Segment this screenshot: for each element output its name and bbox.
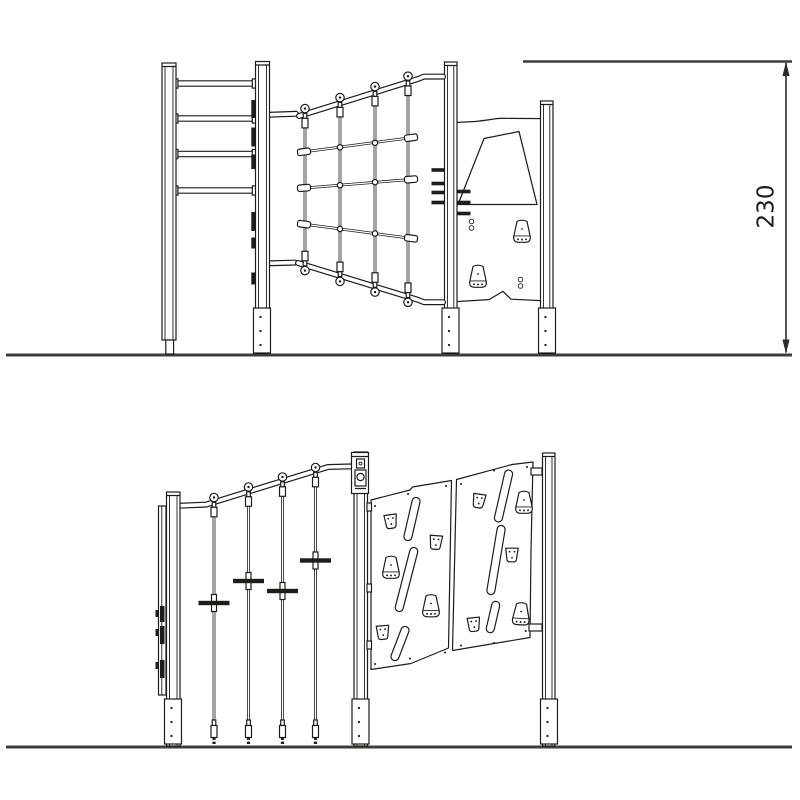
footing-plate — [541, 699, 558, 744]
rope-grip — [300, 558, 331, 562]
climbing-hold — [470, 265, 487, 287]
climbing-hold — [514, 220, 531, 242]
dimension-label: 230 — [754, 185, 780, 229]
climbing-net — [297, 72, 443, 306]
elevation-view-bottom — [6, 452, 792, 747]
wall-hold — [516, 491, 533, 513]
climbing-ropes — [199, 463, 332, 744]
footing-plate — [254, 308, 271, 353]
rope-grip — [267, 589, 298, 593]
wall-hold — [467, 617, 481, 632]
panel-knob — [156, 629, 160, 636]
footing-plate — [442, 308, 459, 353]
elevation-view-top: 230 — [6, 62, 792, 356]
net-horizontal-ropes — [297, 134, 418, 243]
footing-plate — [352, 699, 369, 744]
rope — [267, 482, 298, 745]
wall-hold — [506, 548, 518, 562]
footing-plate — [539, 308, 556, 353]
rope — [199, 502, 230, 744]
rope — [300, 472, 331, 744]
wall-hold — [423, 595, 440, 617]
height-dimension: 230 — [523, 62, 792, 354]
wall-hold — [383, 556, 400, 578]
ladder-rungs — [175, 79, 256, 195]
technical-drawing-page: 230 — [0, 0, 800, 800]
wall-hold — [384, 514, 398, 529]
play-panel — [450, 118, 548, 302]
rope — [233, 492, 264, 745]
footing-plate — [165, 699, 182, 744]
wall-hold — [376, 625, 390, 640]
net-vertical-ropes — [302, 81, 411, 298]
post-foot — [166, 340, 174, 354]
post-ladder-left — [162, 63, 176, 354]
technical-drawing: 230 — [0, 0, 800, 800]
rope-tensioner — [352, 453, 369, 494]
rope-grip — [233, 579, 264, 583]
panel-knob — [156, 610, 160, 617]
panel-knob — [156, 662, 160, 669]
climbing-wall — [367, 462, 542, 670]
panel-edge-profile — [156, 506, 167, 695]
rope-grip — [199, 601, 230, 605]
